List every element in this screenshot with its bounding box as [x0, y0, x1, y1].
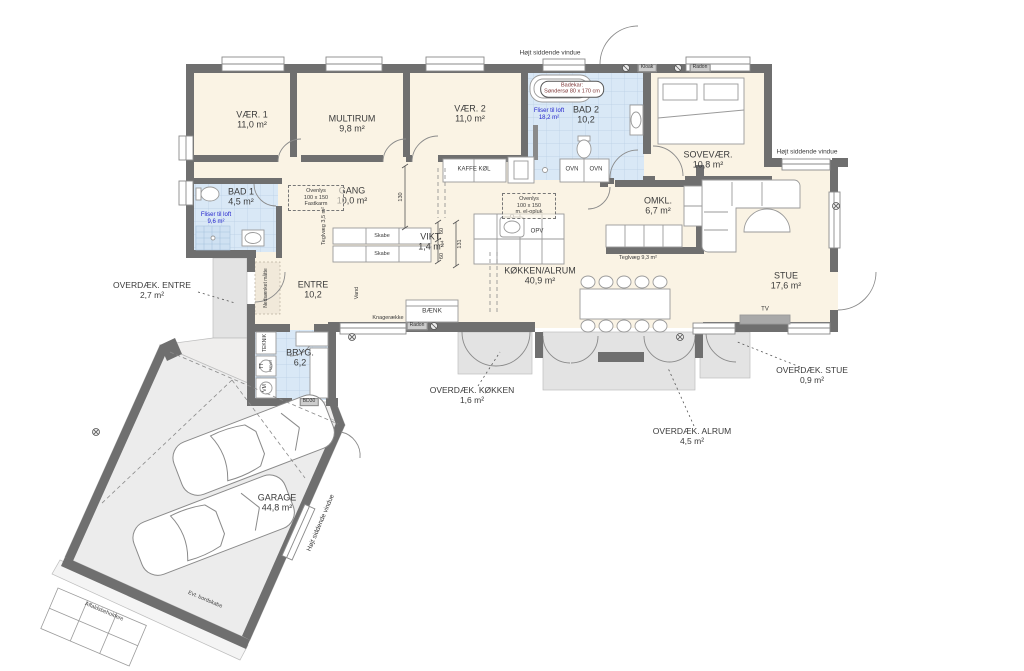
label-tv: TV [761, 307, 769, 314]
room-label-garage: GARAGE 44,8 m² [258, 493, 297, 514]
room-name: BRYG. [286, 348, 314, 358]
note-nedsaenket-maatte: Nedsænket måtte [264, 268, 270, 307]
label-kaffe-koel: KAFFE KØL [457, 167, 490, 174]
fliser-text: Fliser til loft [534, 108, 564, 115]
overdaek-area: 1,6 m² [430, 396, 515, 406]
ovenlys-size: 100 x 150 [290, 195, 342, 202]
label-haevet: Hævet [269, 360, 274, 372]
fliser-area: 9,6 m² [201, 219, 231, 226]
room-label-multirum: MULTIRUM 9,8 m² [329, 114, 376, 135]
room-name: MULTIRUM [329, 114, 376, 124]
note-ovenlys-elopluk: Ovenlys 100 x 150 m. el-opluk [502, 193, 556, 219]
room-label-vaer-1: VÆR. 1 11,0 m² [236, 110, 268, 131]
room-name: STUE [771, 271, 802, 281]
label-radon-top: Radon [690, 64, 711, 72]
ovenlys-title: Ovenlys [290, 188, 342, 195]
room-area: 11,0 m² [454, 114, 486, 124]
label-vm: VM [263, 384, 269, 392]
label-radon-wall: Radon [407, 322, 428, 330]
note-fliser-bad2: Fliser til loft 18,2 m² [534, 108, 564, 122]
label-kloak: Kloak [638, 64, 657, 72]
room-label-omkl: OMKL. 6,7 m² [644, 196, 672, 217]
note-high-window-right: Højt siddende vindue [776, 148, 837, 155]
label-ovn-2: OVN [589, 167, 602, 174]
label-opv: OPV [531, 229, 544, 236]
label-teknik: TEKNIK [263, 334, 269, 352]
label-ovn-1: OVN [565, 167, 578, 174]
label-overdaek-kokken: OVERDÆK. KØKKEN 1,6 m² [430, 386, 515, 406]
ovenlys-type: Fastkarm [290, 201, 342, 208]
room-area: 6,7 m² [644, 206, 672, 216]
dim-130: 130 [398, 192, 404, 201]
label-overdaek-stue: OVERDÆK. STUE 0,9 m² [776, 366, 848, 386]
room-label-bryg: BRYG. 6,2 [286, 348, 314, 369]
note-badekar: Badekar: Søndersø 80 x 170 cm [540, 81, 604, 98]
note-teglvaeg-omkl: Teglvæg 9,3 m² [619, 255, 657, 261]
ovenlys-size: 100 x 150 [504, 203, 554, 210]
label-skabe-2: Skabe [374, 251, 390, 257]
room-area: 40,9 m² [504, 276, 576, 286]
dim-131: 131 [457, 239, 463, 248]
label-vand: Vand [354, 287, 360, 299]
note-high-window-top: Højt siddende vindue [519, 49, 580, 56]
label-overdaek-entre: OVERDÆK. ENTRE 2,7 m² [113, 281, 191, 301]
room-label-kokken-alrum: KØKKEN/ALRUM 40,9 m² [504, 266, 576, 287]
room-label-vaer-2: VÆR. 2 11,0 m² [454, 104, 486, 125]
note-fliser-bad1: Fliser til loft 9,6 m² [201, 212, 231, 226]
dim-60-b: 60 [439, 253, 445, 259]
label-baenk: BÆNK [422, 307, 442, 314]
room-name: BAD 1 [228, 187, 254, 197]
fliser-text: Fliser til loft [201, 212, 231, 219]
label-tt: TT [260, 363, 266, 369]
ovenlys-title: Ovenlys [504, 196, 554, 203]
note-ovenlys-fastkarm: Ovenlys 100 x 150 Fastkarm [288, 185, 344, 211]
room-area: 44,8 m² [258, 503, 297, 513]
fliser-area: 18,2 m² [534, 115, 564, 122]
dim-60-a: 60 [439, 228, 445, 234]
room-name: KØKKEN/ALRUM [504, 266, 576, 276]
room-name: OMKL. [644, 196, 672, 206]
room-area: 9,8 m² [329, 124, 376, 134]
badekar-line2: Søndersø 80 x 170 cm [544, 89, 600, 95]
overdaek-area: 4,5 m² [653, 437, 731, 447]
room-name: ENTRE [298, 280, 329, 290]
room-name: VÆR. 1 [236, 110, 268, 120]
room-name: BAD 2 [573, 105, 599, 115]
label-overdaek-alrum: OVERDÆK. ALRUM 4,5 m² [653, 427, 731, 447]
room-area: 17,6 m² [771, 281, 802, 291]
room-label-stue: STUE 17,6 m² [771, 271, 802, 292]
room-name: SOVEVÆR. [683, 150, 732, 160]
room-name: GARAGE [258, 493, 297, 503]
note-teglvaeg-gang: Teglvæg 3,5 m² [321, 207, 327, 245]
room-name: VÆR. 2 [454, 104, 486, 114]
room-area: 4,5 m² [228, 197, 254, 207]
room-area: 6,2 [286, 358, 314, 368]
dim-14: 14 [439, 240, 444, 245]
room-label-bad-1: BAD 1 4,5 m² [228, 187, 254, 208]
room-label-entre: ENTRE 10,2 [298, 280, 329, 301]
label-knageraekke: Knagerække [372, 315, 403, 321]
ovenlys-type: m. el-opluk [504, 209, 554, 216]
room-area: 10,2 [573, 115, 599, 125]
floor-plan: VÆR. 1 11,0 m² MULTIRUM 9,8 m² VÆR. 2 11… [0, 0, 1024, 671]
room-area: 10,2 [298, 290, 329, 300]
room-area: 10,8 m² [683, 160, 732, 170]
room-label-bad-2: BAD 2 10,2 [573, 105, 599, 126]
plan-canvas [0, 0, 1024, 671]
overdaek-area: 0,9 m² [776, 376, 848, 386]
overdaek-area: 2,7 m² [113, 291, 191, 301]
room-label-sovevaer: SOVEVÆR. 10,8 m² [683, 150, 732, 171]
label-bd30: BD30 [300, 398, 319, 406]
room-area: 11,0 m² [236, 120, 268, 130]
label-skabe-1: Skabe [374, 233, 390, 239]
